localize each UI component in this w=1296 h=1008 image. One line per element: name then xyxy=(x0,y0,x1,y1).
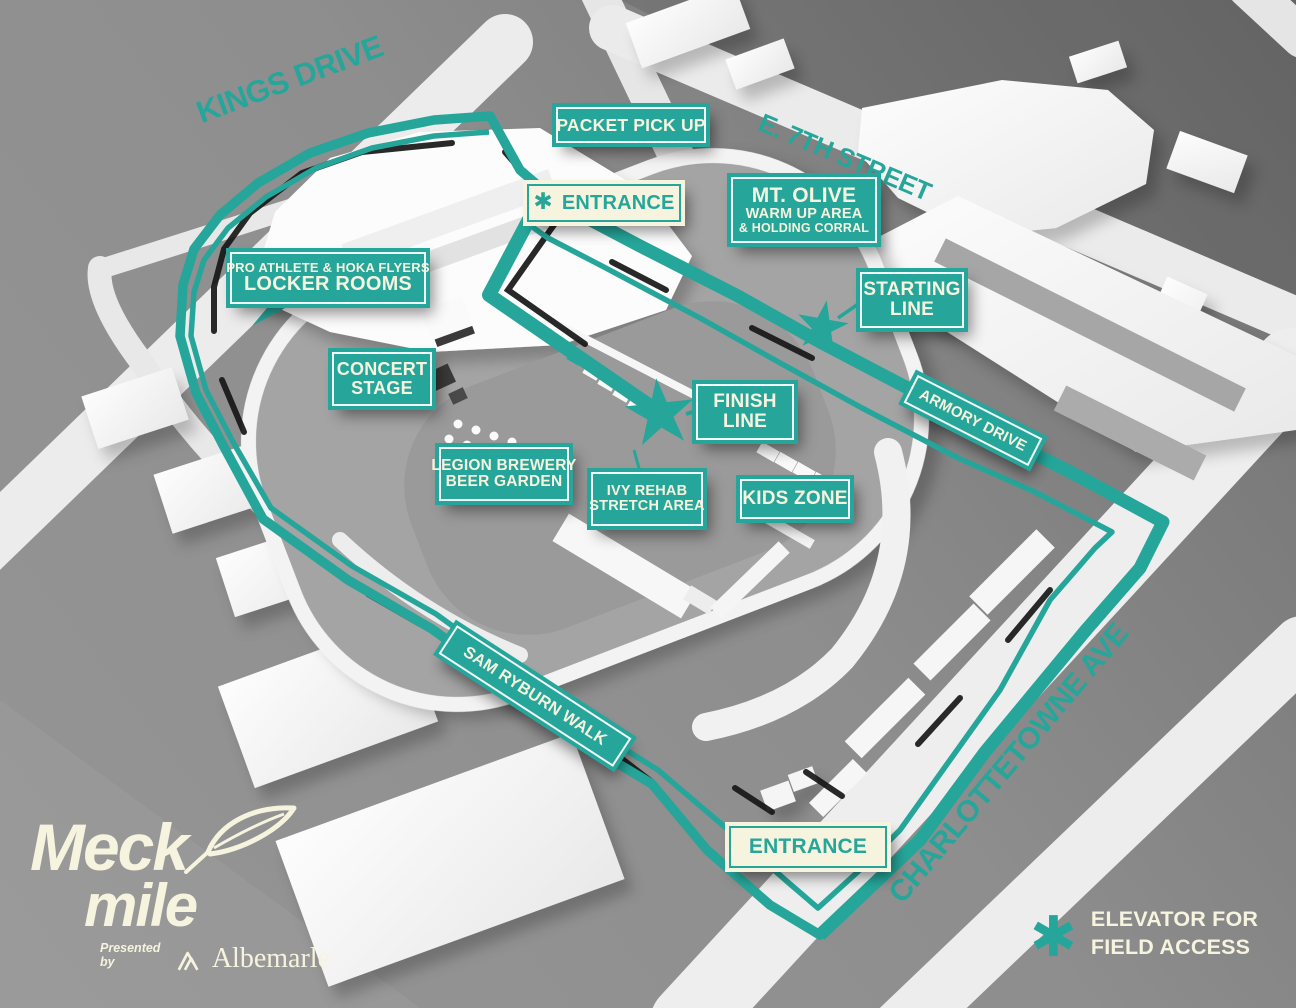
legend-elevator-field-access: ✱ ELEVATOR FOR FIELD ACCESS xyxy=(1030,905,1258,962)
legion-brewery-sign: LEGION BREWERY BEER GARDEN xyxy=(439,447,569,501)
albemarle-logo-icon xyxy=(177,949,205,973)
concert-stage-line2: STAGE xyxy=(351,379,413,398)
locker-rooms-line2: LOCKER ROOMS xyxy=(244,274,412,295)
course-map: KINGS DRIVE E. 7TH STREET CHARLOTTETOWNE… xyxy=(0,0,1296,1008)
packet-pickup-label: PACKET PICK UP xyxy=(556,116,705,134)
concert-stage-line1: CONCERT xyxy=(337,360,427,379)
legend-line1: ELEVATOR FOR xyxy=(1091,905,1258,933)
starting-line-line2: LINE xyxy=(890,300,934,320)
presented-by-label: Presented by xyxy=(100,941,170,969)
concert-stage-sign: CONCERT STAGE xyxy=(332,352,432,406)
legion-brewery-line2: BEER GARDEN xyxy=(446,474,563,490)
entrance-bottom-sign: ENTRANCE xyxy=(729,826,887,868)
entrance-top-sign: ✱ ENTRANCE xyxy=(527,184,681,222)
locker-rooms-line1: PRO ATHLETE & HOKA FLYERS xyxy=(226,261,429,274)
kids-zone-label: KIDS ZONE xyxy=(742,489,847,509)
legion-brewery-line1: LEGION BREWERY xyxy=(431,458,576,474)
elevator-star-icon: ✱ xyxy=(533,190,552,214)
ivy-rehab-line1: IVY REHAB xyxy=(607,484,688,499)
starting-line-line1: STARTING xyxy=(863,280,960,300)
kids-zone-sign: KIDS ZONE xyxy=(740,479,850,519)
legend-line2: FIELD ACCESS xyxy=(1091,933,1258,961)
meck-mile-logo: Meck mile Presented by Albemarle xyxy=(30,818,330,973)
feather-icon xyxy=(182,802,300,874)
logo-word-mile: mile xyxy=(84,879,330,933)
mt-olive-sign: MT. OLIVE WARM UP AREA & HOLDING CORRAL xyxy=(731,177,877,243)
entrance-bottom-label: ENTRANCE xyxy=(749,836,867,858)
finish-line-sign: FINISH LINE xyxy=(696,384,794,440)
mt-olive-line2: WARM UP AREA xyxy=(746,207,863,222)
finish-line-line2: LINE xyxy=(723,412,767,432)
ivy-rehab-sign: IVY REHAB STRETCH AREA xyxy=(591,472,703,526)
packet-pickup-sign: PACKET PICK UP xyxy=(556,107,706,143)
starting-line-sign: STARTING LINE xyxy=(860,272,964,328)
locker-rooms-sign: PRO ATHLETE & HOKA FLYERS LOCKER ROOMS xyxy=(230,252,426,304)
entrance-top-label: ENTRANCE xyxy=(562,193,675,214)
ivy-rehab-line2: STRETCH AREA xyxy=(589,499,704,514)
mt-olive-line1: MT. OLIVE xyxy=(752,185,856,207)
sponsor-name: Albemarle xyxy=(212,945,330,973)
finish-line-line1: FINISH xyxy=(713,392,776,412)
elevator-star-icon: ✱ xyxy=(1030,915,1077,960)
mt-olive-line3: & HOLDING CORRAL xyxy=(739,222,869,235)
